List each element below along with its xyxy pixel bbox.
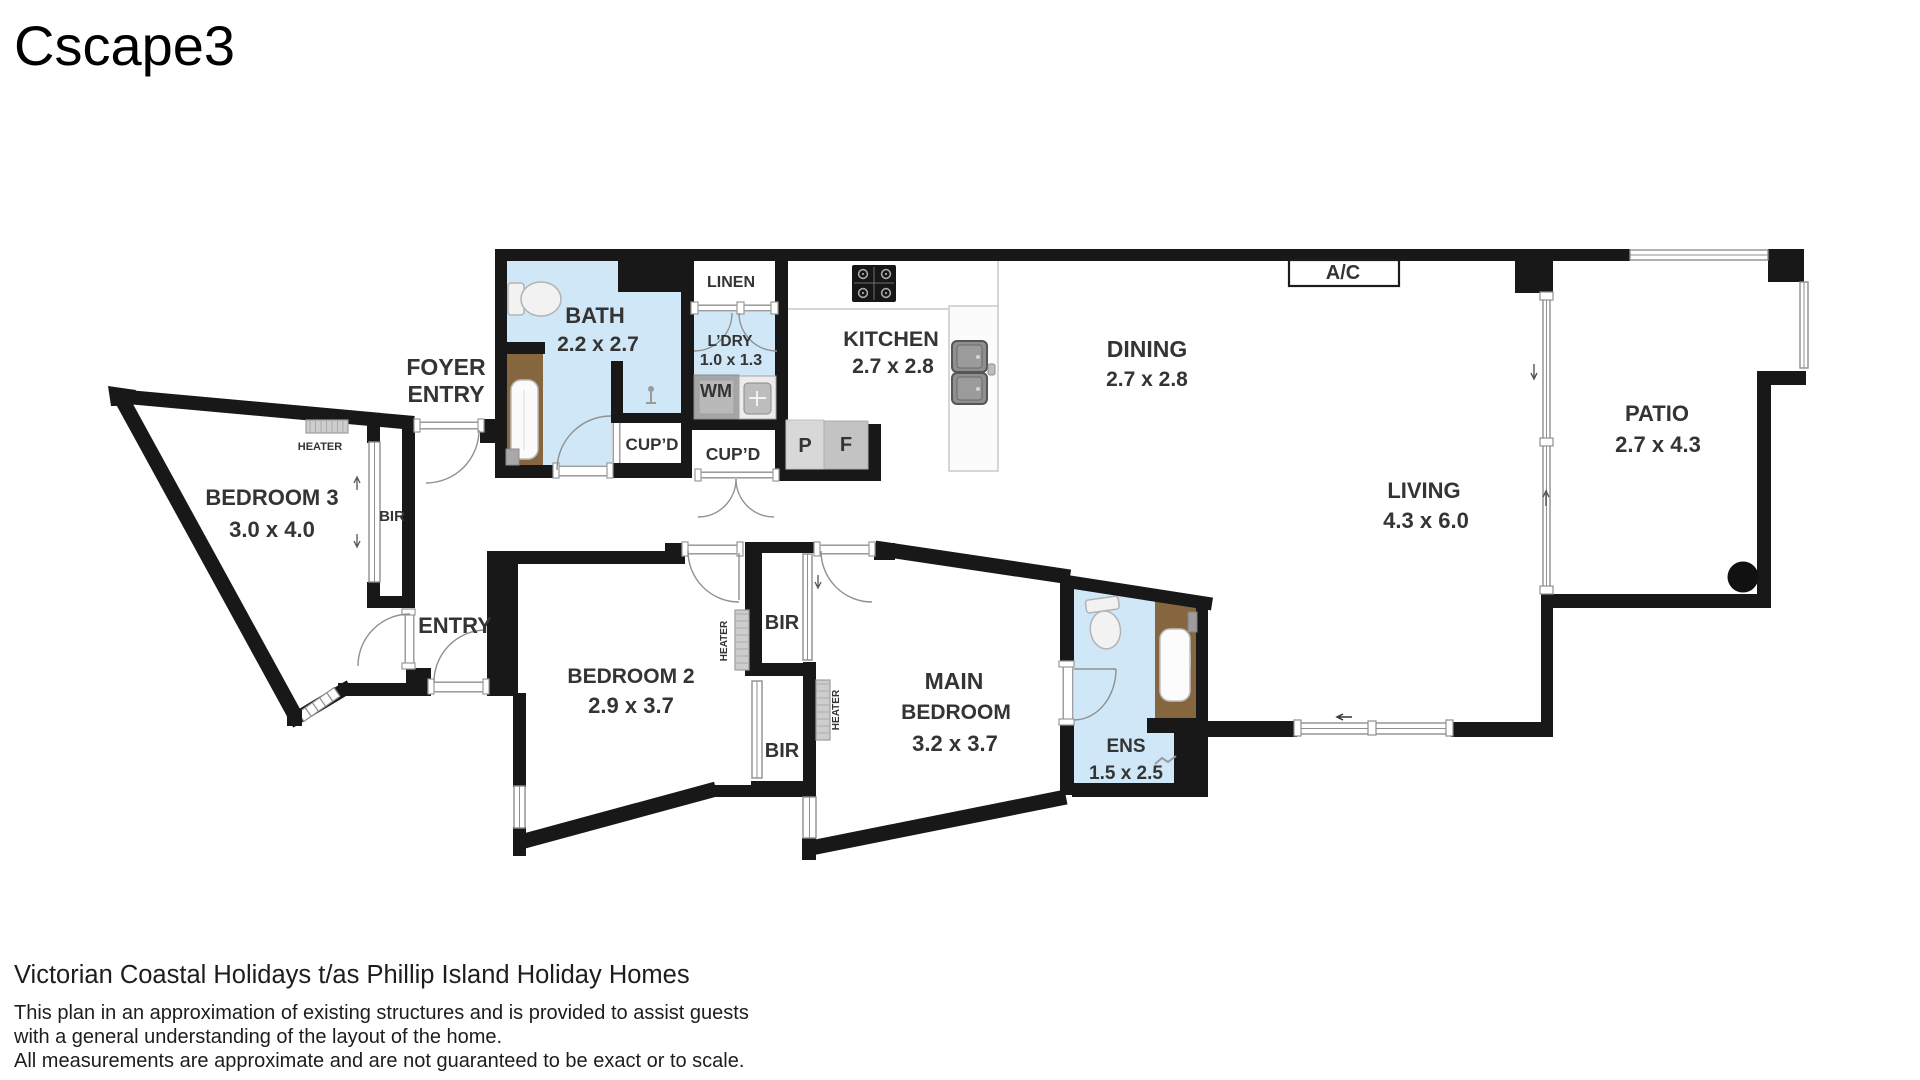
svg-text:2.7 x 2.8: 2.7 x 2.8 [852, 355, 934, 378]
svg-text:2.7 x 4.3: 2.7 x 4.3 [1615, 432, 1701, 457]
svg-text:MAIN: MAIN [925, 668, 984, 694]
svg-text:DINING: DINING [1107, 336, 1188, 362]
svg-text:HEATER: HEATER [719, 620, 730, 661]
svg-text:ENTRY: ENTRY [407, 381, 484, 407]
svg-text:WM: WM [700, 381, 732, 401]
svg-text:CUP’D: CUP’D [626, 435, 679, 454]
svg-text:F: F [840, 434, 852, 456]
svg-text:A/C: A/C [1326, 262, 1360, 284]
svg-text:BATH: BATH [565, 303, 624, 328]
svg-text:Cscape3: Cscape3 [14, 14, 235, 77]
svg-text:Victorian Coastal Holidays t/a: Victorian Coastal Holidays t/as Phillip … [14, 961, 690, 989]
svg-text:2.7 x 2.8: 2.7 x 2.8 [1106, 368, 1188, 391]
svg-text:FOYER: FOYER [406, 354, 486, 380]
svg-text:PATIO: PATIO [1625, 401, 1689, 426]
svg-text:HEATER: HEATER [831, 689, 842, 730]
svg-text:2.9 x 3.7: 2.9 x 3.7 [588, 693, 674, 718]
svg-text:2.2 x 2.7: 2.2 x 2.7 [557, 333, 639, 356]
svg-text:BEDROOM 3: BEDROOM 3 [205, 485, 338, 510]
svg-text:P: P [798, 435, 811, 457]
svg-text:3.2 x 3.7: 3.2 x 3.7 [912, 731, 998, 756]
svg-text:L’DRY: L’DRY [707, 333, 753, 350]
svg-text:BIR: BIR [765, 740, 800, 762]
svg-text:LINEN: LINEN [707, 274, 755, 291]
svg-text:All measurements are approxima: All measurements are approximate and are… [14, 1050, 744, 1072]
svg-text:KITCHEN: KITCHEN [843, 327, 939, 351]
svg-text:HEATER: HEATER [298, 441, 342, 453]
svg-text:BIR: BIR [379, 508, 405, 525]
svg-text:4.3 x 6.0: 4.3 x 6.0 [1383, 508, 1469, 533]
svg-text:1.5 x 2.5: 1.5 x 2.5 [1089, 763, 1163, 784]
svg-text:BEDROOM: BEDROOM [901, 701, 1011, 724]
svg-text:ENTRY: ENTRY [418, 613, 492, 638]
svg-text:CUP’D: CUP’D [706, 444, 760, 464]
svg-text:This plan in an approximation: This plan in an approximation of existin… [14, 1002, 749, 1024]
svg-text:3.0 x 4.0: 3.0 x 4.0 [229, 517, 315, 542]
svg-text:with a general understanding o: with a general understanding of the layo… [13, 1026, 502, 1048]
svg-text:BIR: BIR [765, 612, 800, 634]
svg-text:ENS: ENS [1106, 736, 1145, 757]
svg-text:BEDROOM 2: BEDROOM 2 [567, 665, 694, 688]
svg-text:LIVING: LIVING [1387, 478, 1460, 503]
svg-text:1.0 x 1.3: 1.0 x 1.3 [700, 352, 762, 369]
